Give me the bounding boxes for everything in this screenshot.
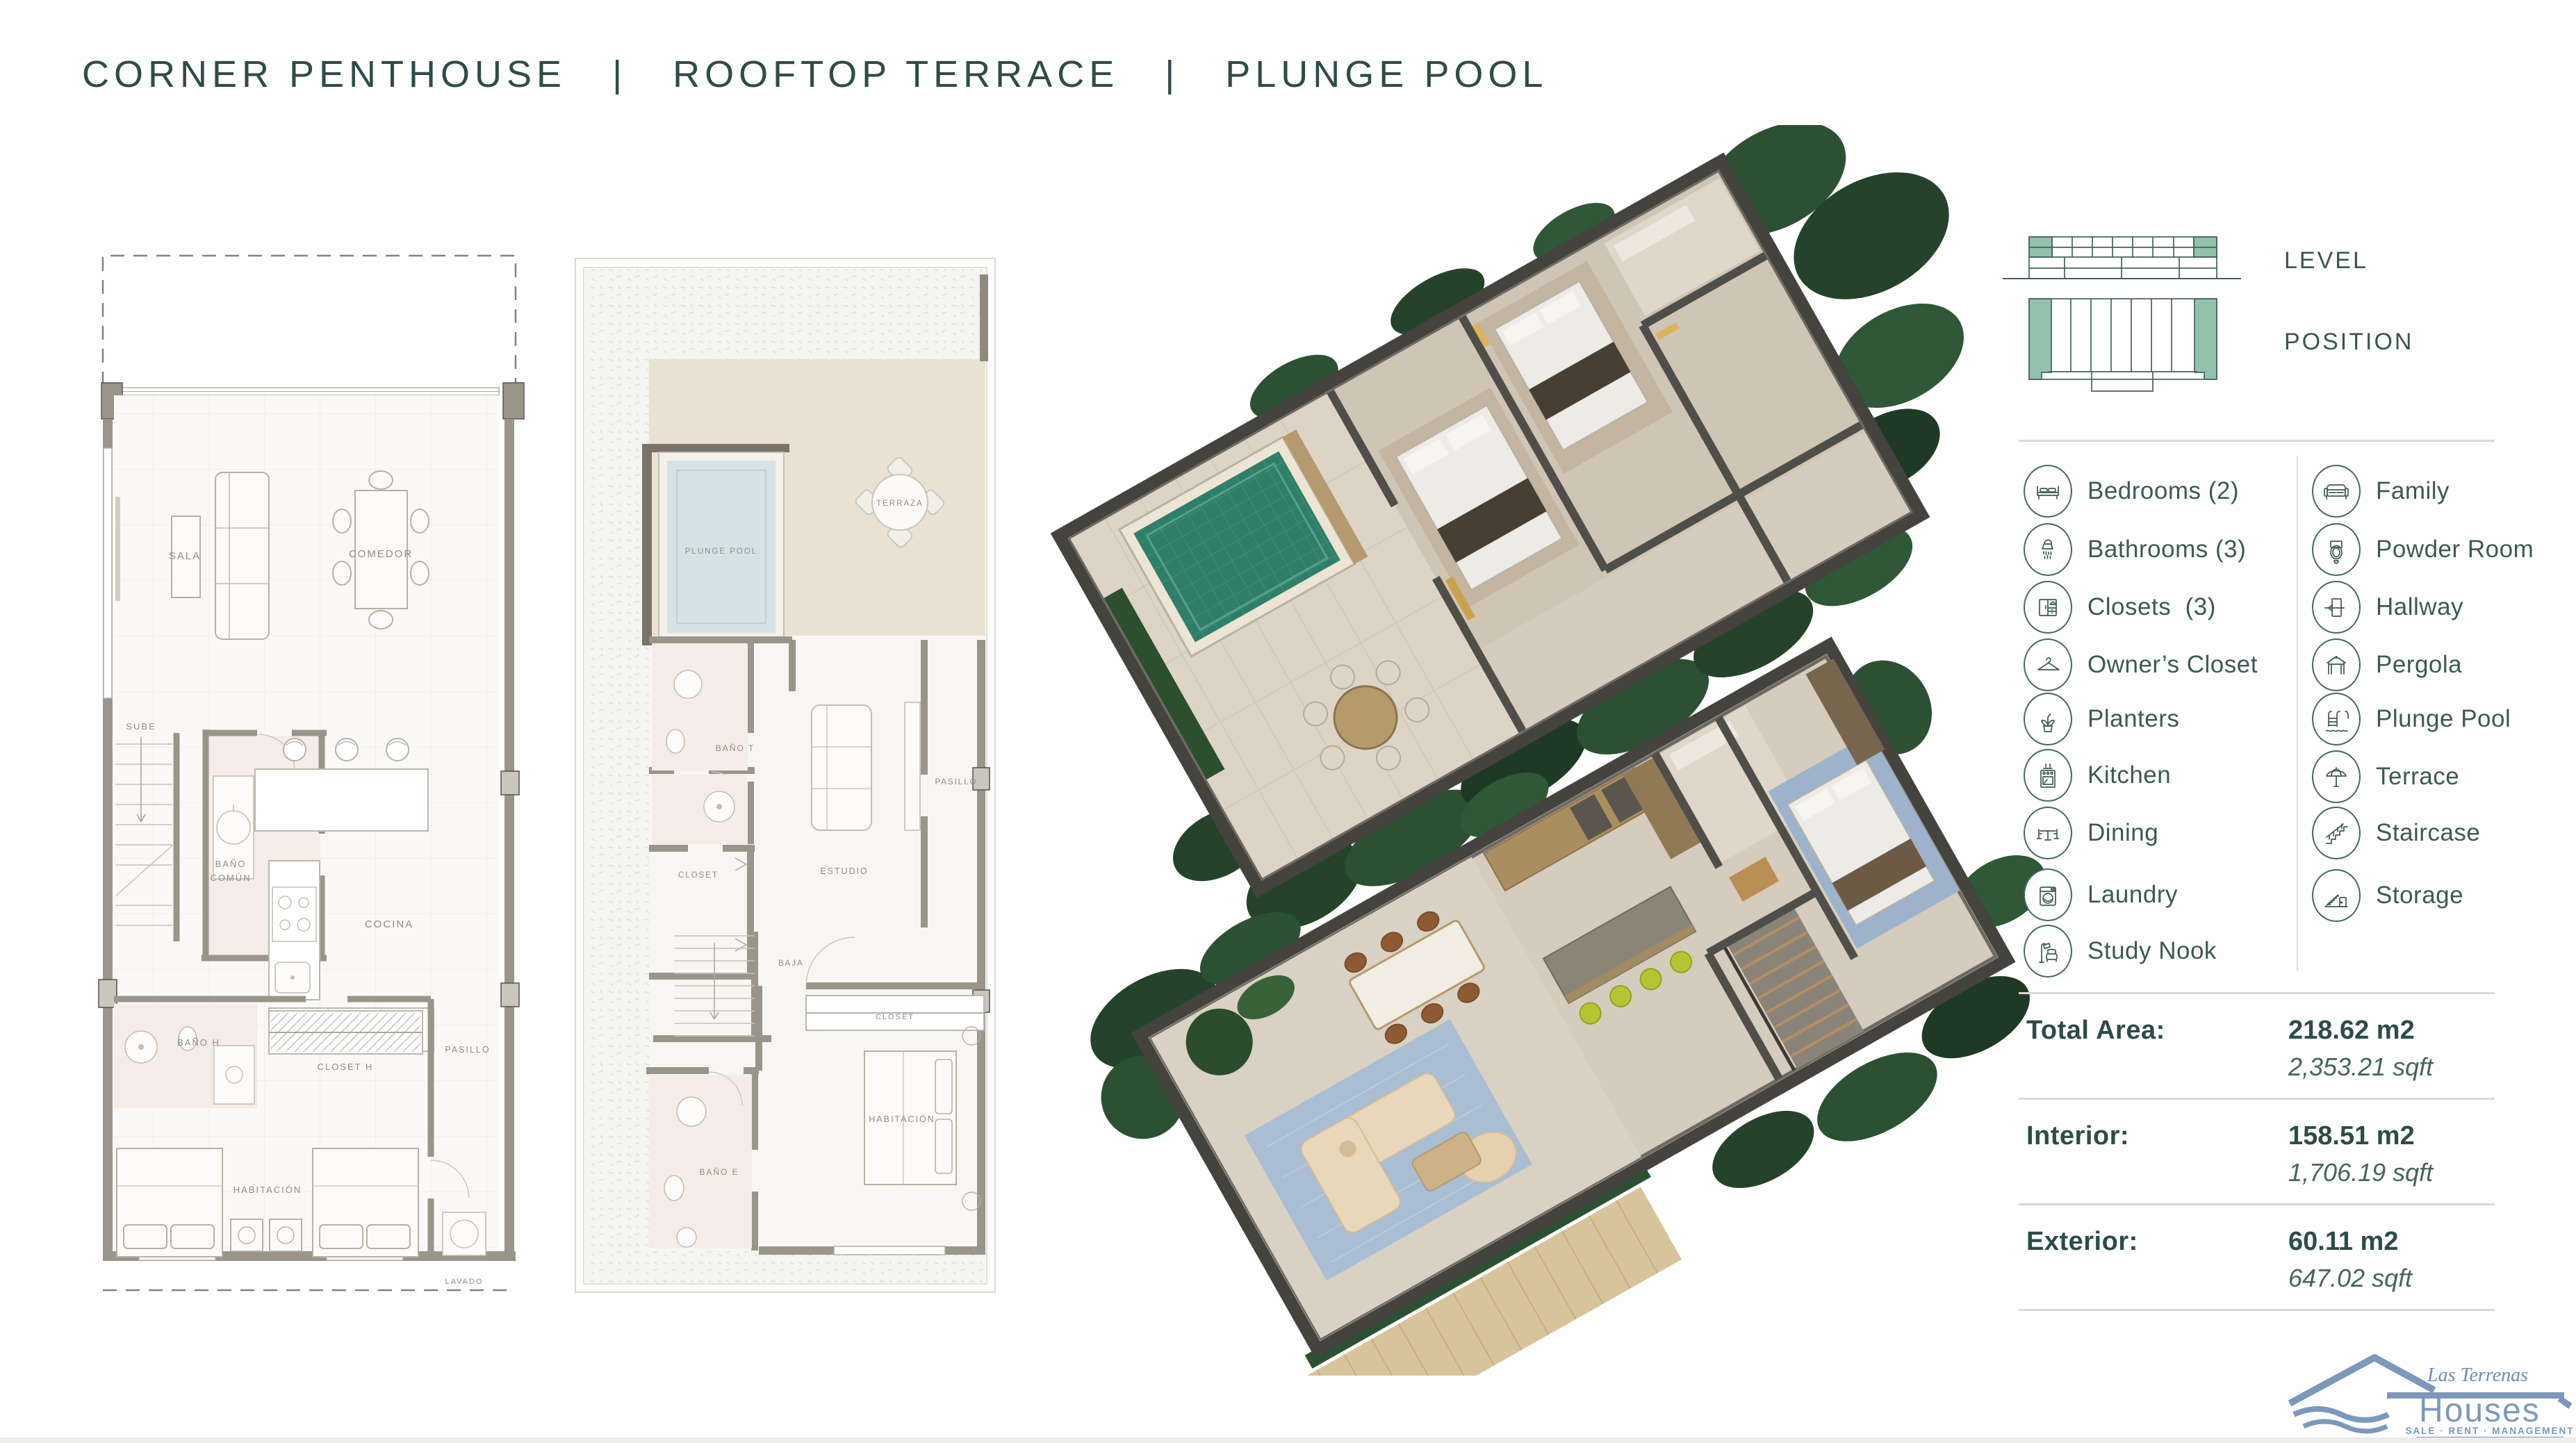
divider (2019, 1203, 2495, 1205)
room-label-pasillo: PASILLO (445, 1045, 490, 1055)
room-label-bano-comun-2: COMÚN (210, 873, 251, 883)
legend-item-owners-closet: Owner’s Closet (2024, 639, 2258, 691)
legend-item-study-nook: Study Nook (2024, 925, 2217, 977)
legend-item-terrace: Terrace (2312, 751, 2459, 802)
exterior-label: Exterior: (2026, 1227, 2138, 1257)
interior-row: Interior: (2026, 1121, 2129, 1151)
total-area-sqft: 2,353.21 sqft (2288, 1053, 2433, 1082)
dining-table-icon (2024, 807, 2072, 859)
room-label-bano-h: BAÑO H (177, 1037, 220, 1048)
room-label-comedor: COMEDOR (349, 548, 413, 560)
legend-item-storage: Storage (2312, 870, 2463, 921)
plant-icon (2024, 693, 2072, 745)
legend-item-bathrooms: Bathrooms (3) (2024, 524, 2246, 575)
position-label: POSITION (2284, 329, 2413, 356)
room-label-baja: BAJA (778, 959, 804, 968)
total-area-values: 218.62 m2 2,353.21 sqft (2288, 1016, 2433, 1082)
room-label-estudio: ESTUDIO (820, 866, 869, 876)
interior-sqft: 1,706.19 sqft (2288, 1158, 2433, 1187)
level-label: LEVEL (2284, 247, 2368, 274)
interior-m2: 158.51 m2 (2288, 1121, 2433, 1151)
toilet-icon (2312, 523, 2361, 576)
exterior-row: Exterior: (2026, 1227, 2138, 1257)
room-label-closet2: CLOSET (876, 1013, 914, 1021)
bed-icon (2024, 465, 2072, 518)
position-diagram (2029, 299, 2217, 391)
divider (2297, 456, 2298, 971)
study-lamp-icon (2024, 925, 2072, 978)
shower-icon (2024, 523, 2072, 576)
umbrella-icon (2312, 750, 2361, 803)
room-label-bano-e: BAÑO E (699, 1167, 739, 1177)
floor-plan-upper: PLUNGE POOL TERRAZA BAÑO T (570, 247, 1022, 1303)
legend-item-hallway: Hallway (2312, 582, 2463, 633)
legend-item-staircase: Staircase (2312, 807, 2480, 859)
page-title: CORNER PENTHOUSE | ROOFTOP TERRACE | PLU… (82, 53, 1548, 96)
sofa-icon (2312, 465, 2361, 518)
legend-item-closets: Closets (3) (2024, 582, 2216, 633)
pool-ladder-icon (2312, 693, 2361, 745)
pergola-icon (2312, 638, 2361, 691)
divider (2019, 992, 2495, 994)
room-label-terraza: TERRAZA (876, 500, 924, 508)
total-area-m2: 218.62 m2 (2288, 1016, 2433, 1046)
total-area-row: Total Area: (2026, 1016, 2165, 1046)
isometric-renders (1008, 125, 2161, 1376)
logo-wave-icon (2294, 1409, 2388, 1420)
floor-plan-lower: SALA COMEDOR SUBE BAÑO COMÚN (97, 247, 528, 1296)
flyer-page: CORNER PENTHOUSE | ROOFTOP TERRACE | PLU… (0, 0, 2576, 1443)
exterior-m2: 60.11 m2 (2288, 1227, 2412, 1257)
stove-icon (2024, 749, 2072, 802)
legend-item-kitchen: Kitchen (2024, 750, 2171, 801)
storage-stairs-icon (2312, 869, 2361, 922)
wardrobe-icon (2024, 581, 2072, 634)
door-arrow-icon (2312, 581, 2361, 634)
exterior-values: 60.11 m2 647.02 sqft (2288, 1227, 2412, 1293)
room-label-pasillo-upper: PASILLO (935, 778, 977, 786)
washer-icon (2024, 868, 2072, 921)
staircase-icon (2312, 807, 2361, 859)
interior-values: 158.51 m2 1,706.19 sqft (2288, 1121, 2433, 1187)
legend-item-pergola: Pergola (2312, 639, 2462, 691)
room-label-plunge-pool: PLUNGE POOL (685, 547, 757, 556)
room-label-closet-h: CLOSET H (318, 1062, 374, 1072)
agency-logo: Las Terrenas Houses SALE · RENT · MANAGE… (2283, 1348, 2575, 1440)
page-bottom-edge (0, 1437, 2576, 1443)
divider (2019, 440, 2495, 442)
exterior-sqft: 647.02 sqft (2288, 1264, 2412, 1293)
divider (2019, 1309, 2495, 1311)
legend-item-bedrooms: Bedrooms (2) (2024, 465, 2239, 517)
room-label-cocina: COCINA (365, 918, 413, 930)
legend-item-laundry: Laundry (2024, 869, 2178, 921)
legend-item-family: Family (2312, 465, 2450, 517)
hanger-icon (2024, 638, 2072, 691)
room-label-bano-comun-1: BAÑO (215, 859, 247, 869)
room-label-bano-t: BAÑO T (716, 743, 755, 753)
room-label-closet-upper: CLOSET (678, 871, 719, 880)
legend-item-planters: Planters (2024, 693, 2179, 745)
total-area-label: Total Area: (2026, 1016, 2165, 1046)
room-label-habitacion: HABITACIÓN (233, 1185, 302, 1195)
logo-tagline-text: SALE · RENT · MANAGEMENT (2406, 1426, 2575, 1436)
room-label-sala: SALA (169, 550, 201, 562)
legend-item-plunge-pool: Plunge Pool (2312, 693, 2511, 745)
divider (2019, 1098, 2495, 1100)
logo-name-text: Houses (2419, 1392, 2541, 1429)
interior-label: Interior: (2026, 1121, 2129, 1151)
legend-item-dining: Dining (2024, 807, 2158, 859)
logo-script-text: Las Terrenas (2427, 1364, 2528, 1386)
legend-item-powder-room: Powder Room (2312, 524, 2534, 575)
logo-wave-icon (2304, 1421, 2387, 1431)
level-diagram (2003, 237, 2241, 279)
room-label-sube: SUBE (126, 721, 156, 732)
room-label-lavado: LAVADO (445, 1278, 484, 1286)
room-label-habitacion-upper: HABITACIÓN (869, 1114, 935, 1124)
